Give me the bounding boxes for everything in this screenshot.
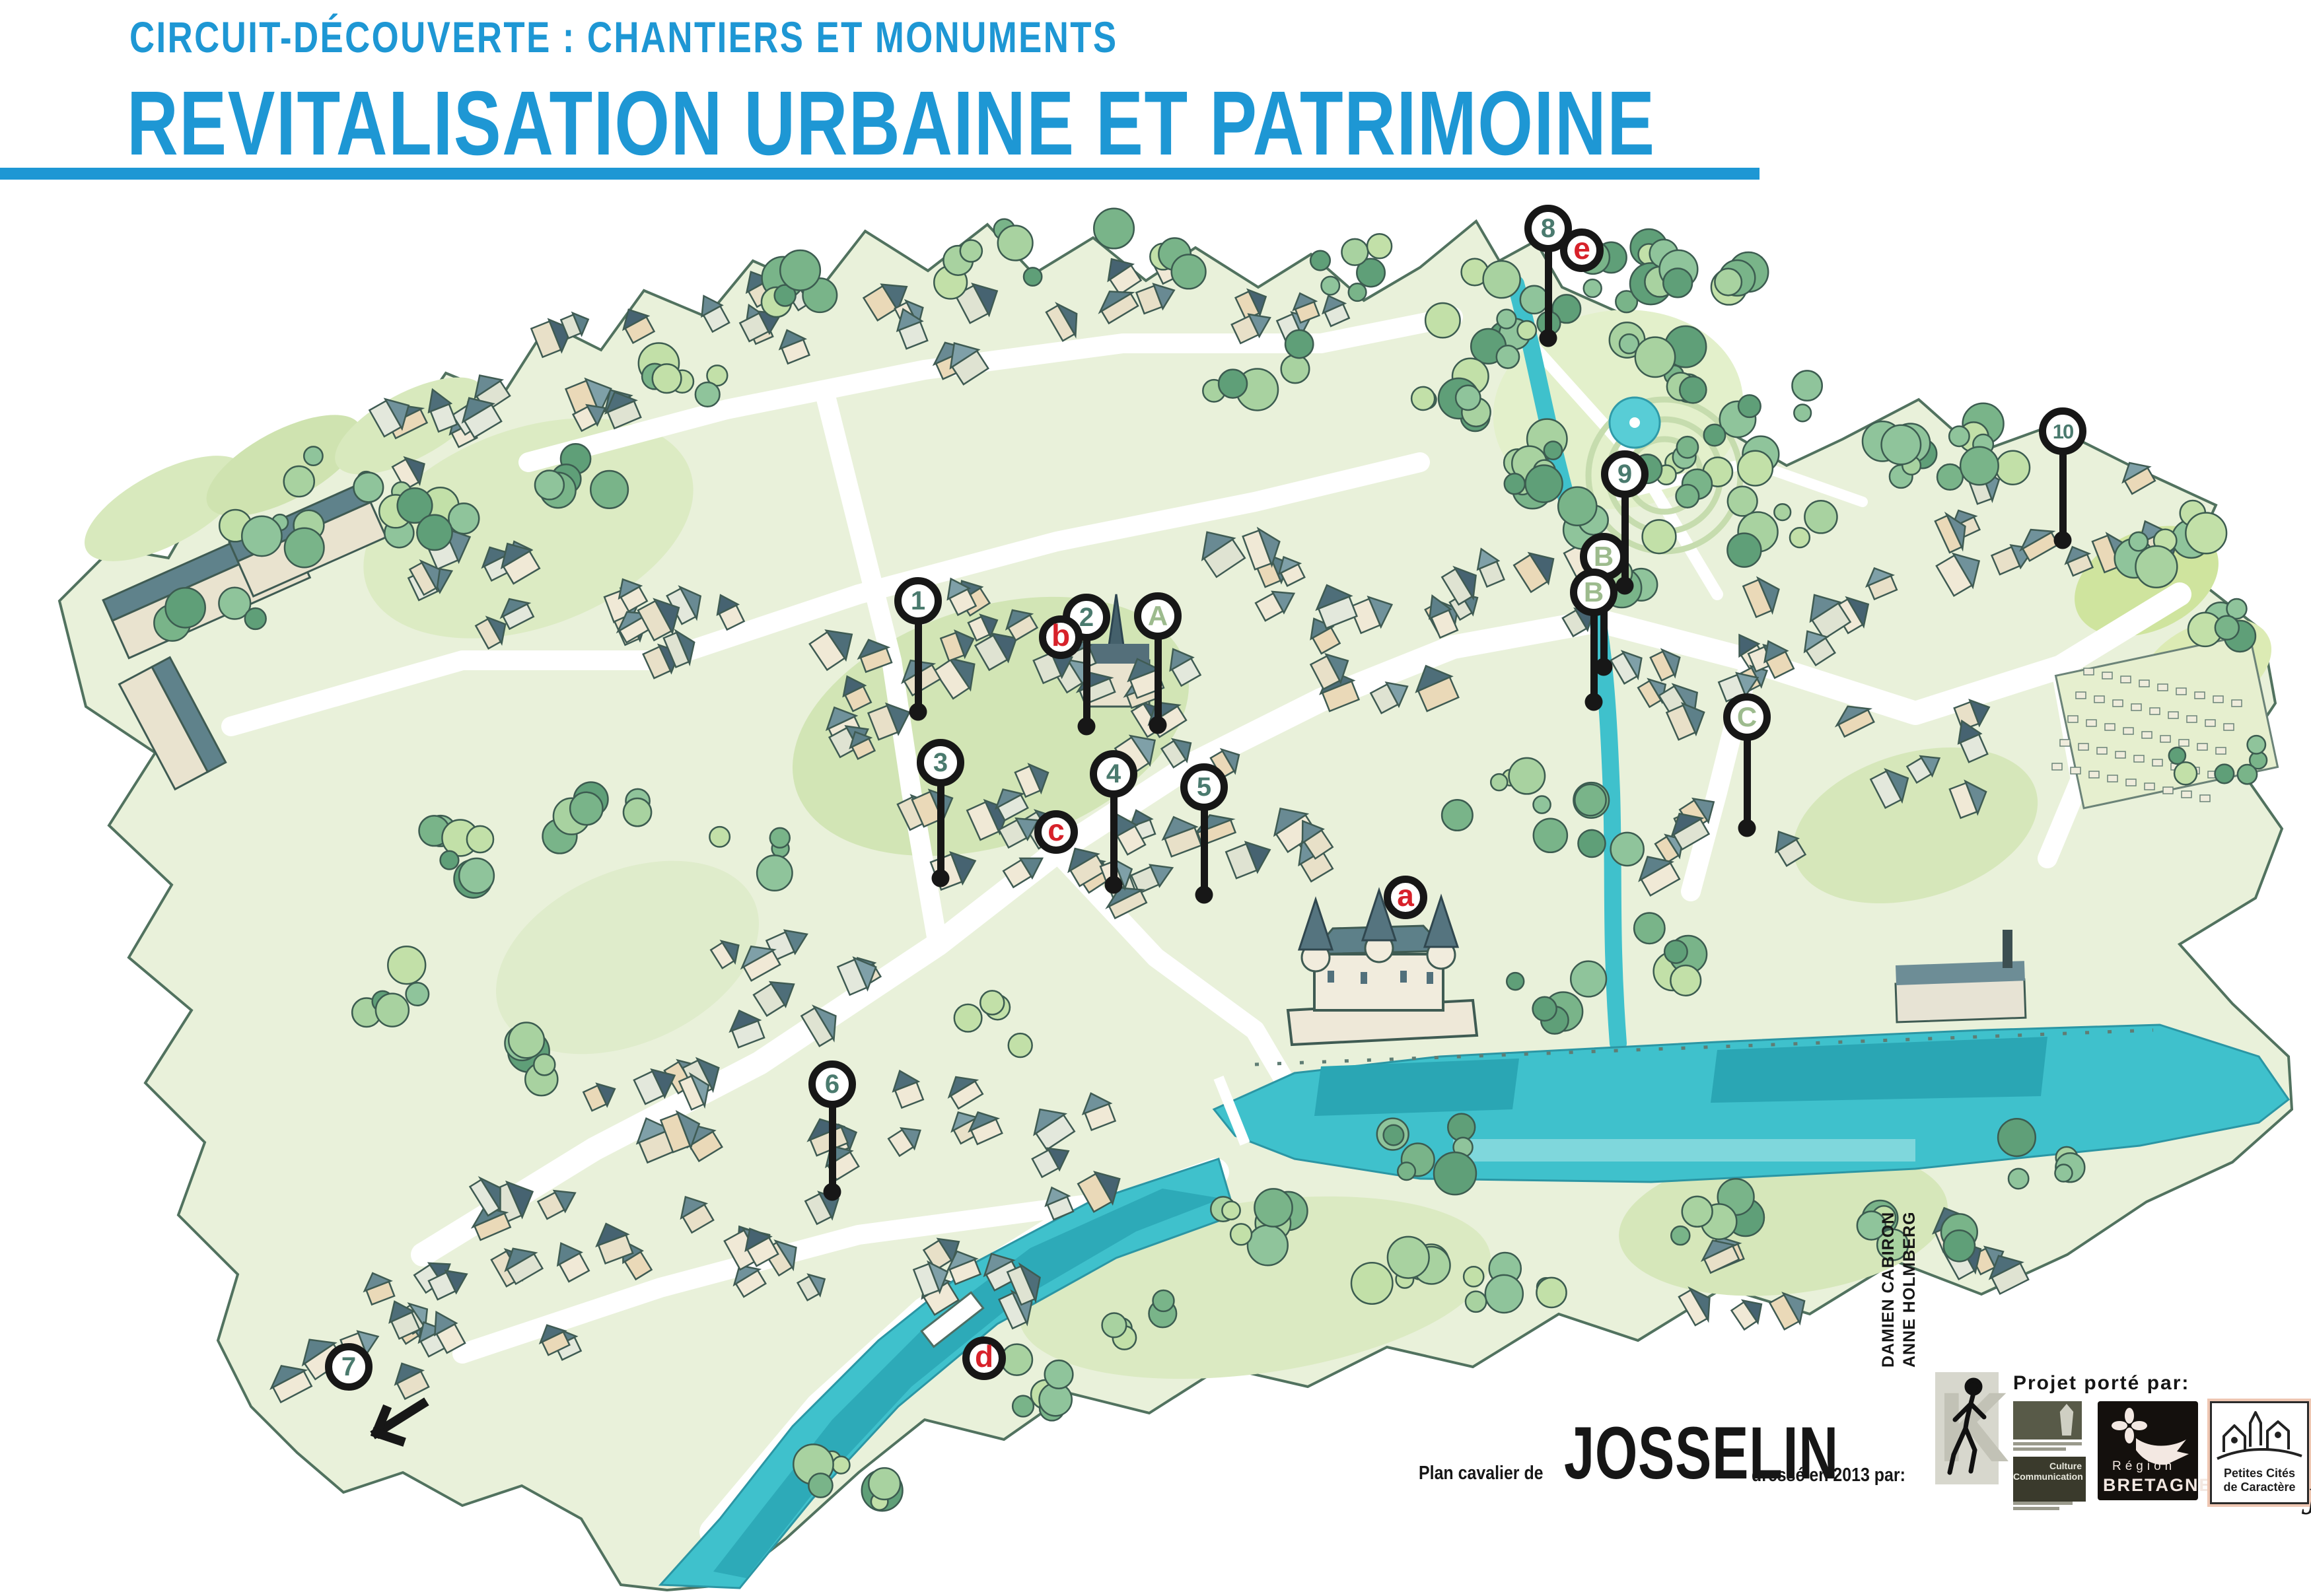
tree [1507, 973, 1524, 990]
cemetery-grave [2108, 775, 2117, 782]
tree [284, 466, 314, 497]
tree [1520, 286, 1548, 314]
tree [1384, 1125, 1404, 1146]
map-marker-7: 7 [325, 1343, 373, 1391]
tree [388, 946, 425, 984]
tree [1491, 774, 1507, 790]
tree [448, 503, 479, 534]
tree [1634, 913, 1664, 944]
cemetery-grave [2060, 740, 2070, 746]
cemetery-grave [2084, 668, 2094, 675]
marker-dot-6 [824, 1183, 841, 1201]
castle-window [1328, 971, 1334, 983]
marker-dot-1 [909, 703, 927, 721]
tree [1534, 819, 1567, 852]
map-marker-3: 3 [917, 739, 964, 786]
tree [1281, 355, 1310, 384]
tree [1001, 1344, 1032, 1375]
tree [1774, 504, 1791, 520]
tree [1998, 1119, 2036, 1156]
marker-dot-10 [2054, 532, 2072, 549]
tree [1398, 1162, 1415, 1180]
tree [1571, 961, 1606, 997]
castle-window [1427, 972, 1433, 984]
tree [535, 471, 564, 500]
tree [1949, 427, 1969, 446]
map-marker-A: A [1134, 592, 1182, 640]
tree [1248, 1225, 1288, 1265]
tree [780, 250, 820, 291]
tree [2238, 765, 2257, 784]
tree [1996, 451, 2030, 485]
tree [2129, 532, 2148, 551]
marker-dot-4 [1105, 876, 1123, 894]
cemetery-grave [2131, 704, 2141, 711]
tree [1497, 310, 1516, 329]
marker-dot-5 [1195, 886, 1213, 904]
tree [998, 226, 1033, 261]
tree [1611, 833, 1644, 866]
cemetery-grave [2142, 732, 2152, 738]
marker-dot-B [1585, 693, 1603, 711]
tree [1584, 279, 1602, 297]
map-marker-9: 9 [1601, 450, 1649, 498]
cemetery-grave [2097, 747, 2107, 754]
tree [695, 382, 720, 407]
cemetery-grave [2168, 712, 2178, 718]
tree [1153, 1290, 1174, 1311]
tree [1715, 269, 1742, 296]
tree [165, 588, 205, 627]
cemetery-grave [2197, 744, 2207, 750]
map-marker-e: e [1560, 228, 1604, 272]
tree [245, 608, 266, 629]
walking-figure-logo: K [1935, 1372, 1999, 1484]
culture-communication-box: Culture Communication [2013, 1457, 2086, 1502]
map-marker-5: 5 [1180, 763, 1228, 811]
tree [285, 528, 324, 568]
cemetery-grave [2076, 692, 2086, 699]
tree [534, 1054, 555, 1075]
petites-cites-label: Petites Cités de Caractère [2212, 1467, 2307, 1494]
tree [406, 983, 429, 1005]
map-marker-d: d [962, 1336, 1006, 1380]
tree [1670, 965, 1701, 996]
tree [1172, 255, 1206, 289]
tree [1045, 1360, 1073, 1389]
tree [1321, 277, 1339, 295]
castle-window [1400, 971, 1407, 983]
tree [1664, 940, 1687, 963]
cemetery-grave [2105, 724, 2115, 730]
cemetery-grave [2158, 684, 2168, 691]
map-canvas: 12345678910ABBCabcde [0, 0, 2311, 1596]
tree [1682, 1197, 1713, 1227]
tree [1367, 234, 1392, 258]
tree [2169, 747, 2186, 764]
tree [417, 515, 452, 550]
map-marker-a: a [1384, 876, 1427, 919]
tree [1677, 436, 1698, 458]
cemetery-grave [2182, 791, 2191, 798]
tree [709, 827, 729, 847]
tree [2215, 765, 2234, 784]
tree [623, 798, 651, 826]
tree [1341, 239, 1368, 265]
tree [1254, 1189, 1292, 1226]
tree [869, 1468, 900, 1500]
cemetery-grave [2150, 708, 2160, 714]
tree [2009, 1169, 2028, 1189]
cemetery-grave [2213, 696, 2223, 703]
tree [1505, 473, 1525, 494]
tree [242, 516, 281, 556]
cemetery-grave [2152, 759, 2162, 766]
tree [590, 471, 628, 508]
map-marker-c: c [1034, 810, 1078, 854]
tree [1448, 1114, 1475, 1141]
tree [1442, 800, 1473, 831]
tree [1456, 386, 1480, 410]
marker-dot-8 [1540, 330, 1557, 347]
logo-petites-cites: Petites Cités de Caractère [2210, 1401, 2309, 1504]
tree [1790, 528, 1810, 547]
marker-dot-C [1738, 819, 1756, 837]
map-marker-b: b [1039, 615, 1083, 659]
cemetery-grave [2113, 700, 2123, 707]
tree [1663, 268, 1692, 297]
tree [1485, 1275, 1523, 1313]
tree [1536, 1278, 1566, 1307]
factory [1896, 979, 2026, 1022]
josselin-script-name: Josselin [2301, 1479, 2311, 1523]
tree [1464, 1266, 1483, 1286]
tree [1680, 376, 1706, 403]
fountain [1629, 417, 1640, 428]
tree [1937, 464, 1963, 490]
tree [1575, 784, 1606, 815]
tree [832, 1457, 849, 1474]
cemetery-grave [2089, 771, 2099, 778]
village-skyline-icon [2212, 1403, 2307, 1464]
tree [1434, 1152, 1476, 1195]
marker-dot-2 [1078, 718, 1096, 736]
tree [2135, 546, 2177, 588]
cemetery-grave [2232, 700, 2242, 707]
map-marker-B: B [1570, 569, 1618, 616]
tree [960, 240, 982, 261]
tree [954, 1004, 982, 1032]
map-marker-6: 6 [808, 1060, 856, 1108]
cemetery-grave [2121, 676, 2131, 683]
tree [1388, 1237, 1429, 1278]
tree [304, 446, 322, 465]
tree [353, 473, 383, 503]
tree [1704, 425, 1725, 446]
tree [770, 828, 790, 848]
tree [459, 858, 494, 893]
tree [1219, 370, 1247, 398]
tree [1285, 330, 1313, 358]
tree [1727, 534, 1761, 567]
tree [1792, 370, 1822, 400]
tree [1230, 1224, 1252, 1245]
cemetery-grave [2216, 747, 2226, 754]
tree [2174, 762, 2197, 784]
tree [1509, 758, 1546, 794]
logo-region-bretagne: Région BRETAGNE [2098, 1401, 2198, 1500]
tree [2215, 616, 2239, 640]
tree [757, 855, 792, 890]
cemetery-grave [2145, 783, 2154, 790]
map-marker-4: 4 [1090, 750, 1137, 798]
tree [1671, 1226, 1689, 1245]
tree [509, 1022, 544, 1058]
tree [1558, 487, 1596, 526]
cemetery-grave [2205, 720, 2215, 726]
cemetery-grave [2071, 767, 2080, 774]
cemetery-grave [2134, 755, 2144, 762]
map-marker-10: 10 [2039, 407, 2086, 455]
tree [980, 990, 1004, 1014]
tree [1738, 451, 1773, 486]
tree [1728, 487, 1758, 516]
tree [1738, 395, 1761, 417]
water-shade [1314, 1058, 1519, 1116]
tree [1518, 321, 1536, 339]
tree [1794, 404, 1811, 421]
tree [376, 994, 409, 1027]
marker-dot-3 [932, 870, 950, 887]
credits-block: Plan cavalier de JOSSELIN dressé en 2013… [1407, 1360, 2305, 1572]
tree [2248, 736, 2265, 753]
partners-label: Projet porté par: [2013, 1372, 2189, 1395]
logo-ministere-culture: Culture Communication [2013, 1401, 2084, 1520]
tree [1676, 485, 1699, 508]
credit-author-2: ANNE HOLMBERG [1900, 1211, 1919, 1368]
cemetery-grave [2079, 744, 2088, 750]
tree [1349, 283, 1367, 301]
tree [1960, 447, 1999, 485]
cemetery-grave [2139, 680, 2149, 687]
tree [1094, 209, 1134, 249]
tree [653, 364, 682, 393]
tree [2186, 512, 2226, 553]
tree [1411, 387, 1435, 410]
direction-arrow-icon [357, 1392, 436, 1451]
factory-chimney [2003, 930, 2012, 968]
tree [2055, 1165, 2072, 1182]
cemetery-grave [2176, 688, 2186, 695]
marianne-emblem [2013, 1401, 2082, 1440]
marker-dot-A [1149, 716, 1167, 734]
tree [1533, 796, 1550, 814]
tree [441, 851, 459, 870]
poster-page: CIRCUIT-DÉCOUVERTE : CHANTIERS ET MONUME… [0, 0, 2311, 1596]
cemetery-grave [2094, 696, 2104, 703]
tree [1310, 251, 1330, 271]
cemetery-grave [2163, 787, 2173, 794]
map-marker-1: 1 [894, 577, 942, 625]
castle-window [1361, 972, 1367, 984]
tree [1102, 1313, 1127, 1338]
marker-dot-9 [1616, 577, 1634, 595]
tree [1483, 261, 1520, 298]
cemetery-grave [2195, 692, 2205, 699]
tree [1425, 303, 1460, 337]
tree [1944, 1230, 1975, 1261]
tree [1466, 1292, 1486, 1312]
tree [1643, 520, 1676, 553]
water-highlight [1453, 1139, 1915, 1162]
tree [570, 792, 602, 825]
walking-figure-icon [1935, 1372, 1999, 1484]
cemetery-grave [2123, 728, 2133, 734]
cemetery-grave [2115, 751, 2125, 758]
tree [1351, 1263, 1392, 1303]
tree [1882, 425, 1921, 464]
cemetery-grave [2224, 724, 2234, 730]
cemetery-grave [2160, 736, 2170, 742]
tree [1222, 1201, 1240, 1219]
cemetery-grave [2179, 740, 2189, 746]
cemetery-grave [2068, 716, 2078, 722]
tree [1533, 997, 1557, 1021]
tree [1804, 501, 1837, 533]
tree [808, 1473, 832, 1497]
map-marker-C: C [1723, 693, 1771, 741]
tree [467, 826, 493, 852]
tree [1024, 267, 1042, 285]
cemetery-grave [2200, 795, 2210, 802]
cemetery-grave [2086, 720, 2096, 726]
tree [1009, 1033, 1032, 1057]
tree [1635, 337, 1675, 377]
cemetery-grave [2052, 763, 2062, 770]
tree [1497, 345, 1519, 368]
credit-author-1: DAMIEN CABIRON [1879, 1212, 1898, 1368]
tree [1013, 1396, 1034, 1417]
credit-suffix: dressé en 2013 par: [1752, 1465, 1905, 1486]
cemetery-grave [2187, 716, 2197, 722]
tree [1578, 830, 1605, 857]
cemetery-grave [2126, 779, 2136, 786]
tree [1544, 441, 1562, 459]
credit-prefix: Plan cavalier de [1419, 1463, 1544, 1484]
tree [1526, 465, 1563, 502]
cemetery-grave [2102, 672, 2112, 679]
